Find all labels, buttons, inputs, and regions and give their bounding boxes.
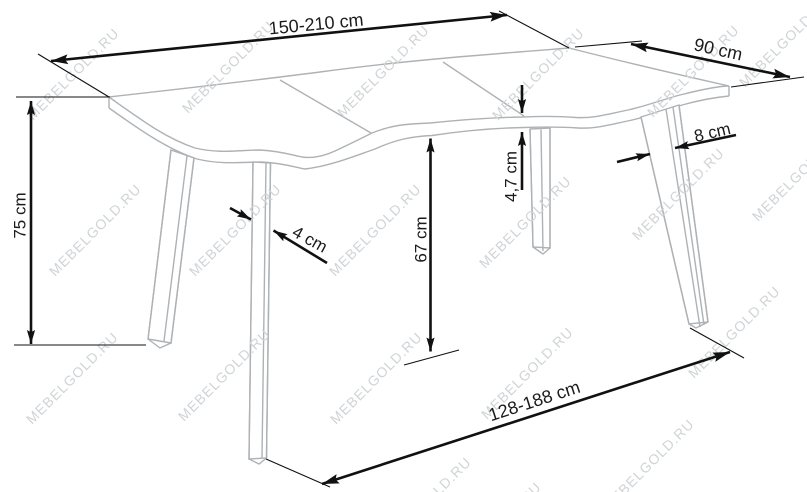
svg-text:4,7 cm: 4,7 cm — [502, 151, 521, 202]
svg-text:75 cm: 75 cm — [11, 192, 30, 238]
svg-text:67 cm: 67 cm — [412, 216, 431, 262]
